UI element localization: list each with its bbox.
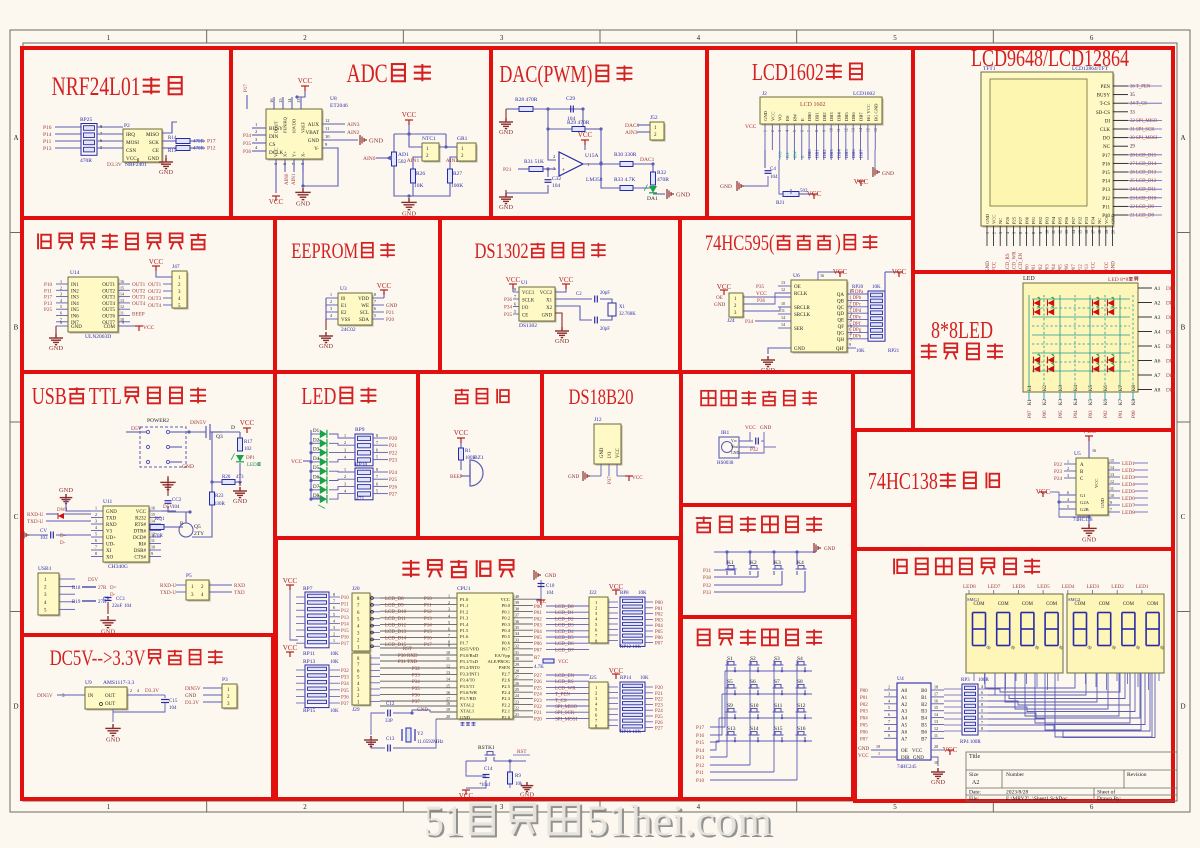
svg-text:LCD_EN: LCD_EN xyxy=(1019,252,1024,272)
svg-text:P02: P02 xyxy=(534,617,542,622)
svg-text:S6: S6 xyxy=(750,679,756,685)
svg-text:P05: P05 xyxy=(1058,216,1063,224)
svg-text:6: 6 xyxy=(1067,490,1069,495)
svg-text:A4: A4 xyxy=(1154,330,1161,336)
svg-text:6: 6 xyxy=(374,306,376,311)
svg-text:OUT4: OUT4 xyxy=(132,301,146,307)
svg-text:P17: P17 xyxy=(341,642,349,647)
svg-text:GND: GND xyxy=(1111,261,1116,272)
svg-text:GND: GND xyxy=(159,169,173,176)
svg-text:7: 7 xyxy=(888,719,890,724)
svg-text:P23: P23 xyxy=(389,458,397,464)
svg-text:VCC: VCC xyxy=(616,448,621,458)
svg-text:R9: R9 xyxy=(515,774,521,779)
svg-text:6: 6 xyxy=(1090,34,1094,42)
svg-text:R20: R20 xyxy=(222,475,231,480)
svg-text:VCC: VCC xyxy=(1092,261,1097,272)
svg-text:J52: J52 xyxy=(650,115,658,121)
svg-text:MISO: MISO xyxy=(146,132,159,138)
svg-text:P02: P02 xyxy=(1104,410,1109,418)
svg-text:RQ1: RQ1 xyxy=(155,517,165,522)
svg-text:P03: P03 xyxy=(1044,216,1049,224)
svg-text:37: 37 xyxy=(515,613,519,618)
svg-text:RST/VPD: RST/VPD xyxy=(460,647,480,652)
svg-text:104: 104 xyxy=(770,175,778,180)
svg-text:15 DPa: 15 DPa xyxy=(849,290,864,295)
svg-text:7: 7 xyxy=(514,294,516,299)
svg-text:DB0: DB0 xyxy=(807,112,812,121)
svg-text:P07: P07 xyxy=(1028,410,1033,418)
svg-text:P00: P00 xyxy=(1025,216,1030,224)
svg-text:SCL: SCL xyxy=(360,311,369,316)
svg-text:11: 11 xyxy=(1110,486,1114,491)
svg-text:P25: P25 xyxy=(1011,216,1016,224)
svg-text:473: 473 xyxy=(236,475,244,480)
svg-text:DPh: DPh xyxy=(1166,373,1176,379)
svg-text:13: 13 xyxy=(781,280,785,285)
svg-text:OUT2: OUT2 xyxy=(132,288,146,294)
svg-text:VCC: VCC xyxy=(454,429,469,437)
svg-text:RP7: RP7 xyxy=(303,586,313,592)
svg-text:P10: P10 xyxy=(44,282,52,288)
svg-text:A3: A3 xyxy=(901,710,908,715)
svg-text:18: 18 xyxy=(446,701,450,706)
svg-text:VCC: VCC xyxy=(402,111,417,119)
svg-text:LED7: LED7 xyxy=(988,584,1001,590)
svg-text:S7: S7 xyxy=(774,679,780,685)
svg-text:10K: 10K xyxy=(330,652,339,657)
svg-text:Title: Title xyxy=(969,754,980,760)
svg-text:5: 5 xyxy=(60,304,62,309)
svg-text:P24: P24 xyxy=(655,709,663,714)
svg-text:2: 2 xyxy=(992,232,997,234)
svg-text:13: 13 xyxy=(1110,472,1114,477)
svg-text:P05: P05 xyxy=(534,636,542,641)
svg-text:P26: P26 xyxy=(534,680,542,685)
svg-text:G2B: G2B xyxy=(1080,507,1089,512)
svg-text:P02: P02 xyxy=(655,613,663,618)
svg-text:T-CS: T-CS xyxy=(1100,102,1111,107)
svg-text:C14: C14 xyxy=(484,767,493,772)
svg-text:GND: GND xyxy=(1082,537,1096,544)
svg-text:LED6: LED6 xyxy=(1012,584,1025,590)
svg-text:RTS#: RTS# xyxy=(135,523,147,528)
svg-text:TXD: TXD xyxy=(234,590,245,596)
svg-text:COM: COM xyxy=(1075,602,1087,607)
svg-text:P14: P14 xyxy=(341,622,349,627)
svg-text:BZ1: BZ1 xyxy=(474,455,484,461)
svg-text:104: 104 xyxy=(172,505,180,510)
svg-text:P12: P12 xyxy=(696,763,704,769)
svg-text:Revision: Revision xyxy=(1127,772,1147,778)
svg-text:TTL: TTL xyxy=(89,384,122,410)
svg-text:K2: K2 xyxy=(1043,385,1048,391)
svg-text:VCC: VCC xyxy=(291,459,303,465)
svg-text:GND: GND xyxy=(148,156,159,162)
svg-text:P15: P15 xyxy=(1102,171,1110,176)
svg-text:S3: S3 xyxy=(774,656,780,662)
svg-text:B: B xyxy=(1181,323,1186,331)
svg-text:P00: P00 xyxy=(860,689,868,694)
svg-text:P2.0: P2.0 xyxy=(502,715,511,720)
svg-text:C2: C2 xyxy=(576,292,582,297)
svg-text:P2: P2 xyxy=(124,123,130,129)
svg-text:P1.4: P1.4 xyxy=(460,622,469,627)
svg-text:VCC: VCC xyxy=(1104,215,1109,224)
svg-text:PENIRQ: PENIRQ xyxy=(283,116,288,133)
svg-text:GND: GND xyxy=(101,629,115,636)
svg-text:GND: GND xyxy=(106,510,117,515)
svg-text:5: 5 xyxy=(1067,504,1069,509)
svg-text:X1: X1 xyxy=(619,305,625,310)
svg-text:P3.7/RD: P3.7/RD xyxy=(460,696,477,701)
svg-text:D1: D1 xyxy=(313,429,320,434)
svg-text:P2.3: P2.3 xyxy=(502,696,511,701)
svg-text:DS18B20: DS18B20 xyxy=(568,384,633,409)
svg-text:P03: P03 xyxy=(534,624,542,629)
svg-text:9: 9 xyxy=(822,130,826,132)
svg-text:15: 15 xyxy=(1110,458,1114,463)
svg-text:B0: B0 xyxy=(921,689,927,694)
svg-text:P00: P00 xyxy=(534,605,542,610)
svg-text:38: 38 xyxy=(515,606,519,611)
svg-text:P3.5/T1: P3.5/T1 xyxy=(460,684,475,689)
svg-text:34 T_CS: 34 T_CS xyxy=(1130,102,1147,107)
svg-text:P34: P34 xyxy=(745,319,753,325)
svg-text:VCC1: VCC1 xyxy=(522,291,535,296)
svg-text:BEEP: BEEP xyxy=(450,474,463,480)
svg-text:VCC: VCC xyxy=(1036,488,1051,496)
svg-text:4: 4 xyxy=(95,525,97,530)
svg-text:LCD12864/TFT: LCD12864/TFT xyxy=(1072,66,1109,72)
svg-text:8: 8 xyxy=(333,592,335,597)
svg-text:J24: J24 xyxy=(727,318,735,324)
svg-text:12: 12 xyxy=(325,118,330,123)
svg-text:J12: J12 xyxy=(594,417,602,423)
svg-text:IN2: IN2 xyxy=(71,289,79,294)
svg-text:VCC: VCC xyxy=(745,425,756,431)
svg-text:P00: P00 xyxy=(1132,410,1137,418)
svg-text:S13: S13 xyxy=(727,726,736,732)
svg-text:A4: A4 xyxy=(901,717,908,722)
svg-text:GND: GND xyxy=(760,425,771,431)
svg-text:P05: P05 xyxy=(655,630,663,635)
svg-text:P05: P05 xyxy=(860,724,868,729)
svg-text:GND: GND xyxy=(676,192,690,199)
svg-text:R232: R232 xyxy=(135,517,146,522)
svg-text:R29 470R: R29 470R xyxy=(567,120,590,126)
svg-text:K3: K3 xyxy=(1059,385,1064,391)
svg-text:VO: VO xyxy=(778,151,783,158)
svg-text:A1: A1 xyxy=(1154,286,1161,292)
svg-text:COM: COM xyxy=(1123,602,1135,607)
svg-text:VCC: VCC xyxy=(807,190,822,198)
svg-text:RW: RW xyxy=(792,113,797,121)
svg-text:14: 14 xyxy=(1071,230,1076,234)
svg-text:14: 14 xyxy=(446,677,450,682)
svg-text:DCD#: DCD# xyxy=(133,536,147,541)
svg-text:ALE/PROG: ALE/PROG xyxy=(488,659,511,664)
svg-text:OUT1: OUT1 xyxy=(132,282,146,288)
svg-text:P06: P06 xyxy=(1043,410,1048,418)
svg-text:COM: COM xyxy=(1147,602,1159,607)
svg-text:C29: C29 xyxy=(566,96,575,102)
svg-text:LED3: LED3 xyxy=(1087,584,1100,590)
svg-text:E: E xyxy=(800,155,805,158)
svg-text:D=: D= xyxy=(110,586,117,591)
svg-text:14: 14 xyxy=(934,712,938,717)
svg-text:AIN1: AIN1 xyxy=(407,158,420,164)
svg-text:S4: S4 xyxy=(797,656,803,662)
svg-text:Q3: Q3 xyxy=(216,434,223,440)
svg-text:RSTK1: RSTK1 xyxy=(478,745,495,751)
svg-text:A2: A2 xyxy=(972,780,979,786)
svg-text:GND: GND xyxy=(49,345,63,352)
svg-text:P11: P11 xyxy=(44,288,52,294)
svg-text:RP13: RP13 xyxy=(303,659,315,665)
svg-text:P3.6/WR: P3.6/WR xyxy=(460,690,478,695)
svg-text:P0.3: P0.3 xyxy=(502,622,511,627)
svg-text:VCC: VCC xyxy=(858,753,869,759)
svg-text:OUT3: OUT3 xyxy=(148,296,162,302)
svg-text:P23: P23 xyxy=(655,703,663,708)
svg-text:P21: P21 xyxy=(655,692,663,697)
svg-text:A5: A5 xyxy=(901,724,908,729)
svg-text:VCC: VCC xyxy=(717,283,732,291)
svg-text:VCC: VCC xyxy=(274,148,279,157)
svg-text:AIN2: AIN2 xyxy=(446,158,459,164)
svg-text:33P: 33P xyxy=(385,719,393,724)
svg-text:G2A: G2A xyxy=(1080,500,1090,505)
svg-text:2: 2 xyxy=(344,474,346,479)
svg-text:470R: 470R xyxy=(80,158,92,164)
svg-text:6: 6 xyxy=(448,627,450,632)
svg-text:IRQ: IRQ xyxy=(126,132,135,138)
svg-text:P2.1: P2.1 xyxy=(502,709,511,714)
svg-text:DB2: DB2 xyxy=(822,112,827,121)
svg-text:A: A xyxy=(1180,134,1185,142)
svg-text:2: 2 xyxy=(303,803,307,811)
svg-text:P21: P21 xyxy=(389,443,397,449)
svg-text:CLK: CLK xyxy=(1100,128,1110,133)
svg-text:VCC: VCC xyxy=(377,282,392,290)
svg-text:GR1: GR1 xyxy=(457,136,468,142)
svg-text:GND: GND xyxy=(417,708,428,713)
svg-text:30: 30 xyxy=(515,656,519,661)
svg-text:XTAL1: XTAL1 xyxy=(460,709,475,714)
svg-text:13: 13 xyxy=(934,719,938,724)
svg-text:LED8: LED8 xyxy=(1122,510,1135,516)
svg-text:QC: QC xyxy=(837,306,845,311)
svg-text:J29: J29 xyxy=(352,707,360,713)
svg-text:DIN5V: DIN5V xyxy=(185,686,201,692)
svg-text:10: 10 xyxy=(1110,493,1114,498)
svg-text:VCC: VCC xyxy=(558,660,569,665)
svg-text:11.0592MHz: 11.0592MHz xyxy=(417,740,444,745)
svg-text:U1: U1 xyxy=(521,280,528,286)
svg-text:P10: P10 xyxy=(341,596,349,601)
svg-text:2: 2 xyxy=(553,154,555,159)
svg-text:P30: P30 xyxy=(703,575,711,581)
svg-text:24: 24 xyxy=(515,693,519,698)
svg-text:NC: NC xyxy=(1103,145,1111,150)
svg-text:CR: CR xyxy=(103,597,110,602)
svg-text:D2: D2 xyxy=(313,438,320,443)
svg-text:IN1: IN1 xyxy=(71,283,79,288)
svg-text:OUT5: OUT5 xyxy=(102,308,115,313)
svg-text:P13: P13 xyxy=(696,755,704,761)
svg-text:15: 15 xyxy=(934,705,938,710)
svg-text:S5: S5 xyxy=(727,679,733,685)
svg-text:3: 3 xyxy=(344,447,346,452)
svg-text:QH: QH xyxy=(837,338,845,343)
svg-text:P01: P01 xyxy=(1119,410,1124,418)
svg-text:): ) xyxy=(835,230,841,255)
svg-text:P2.2: P2.2 xyxy=(502,702,511,707)
svg-text:12: 12 xyxy=(1110,479,1114,484)
svg-text:8: 8 xyxy=(981,702,983,707)
svg-text:IN4: IN4 xyxy=(71,302,79,307)
svg-text:B6: B6 xyxy=(921,730,927,735)
svg-text:VCC: VCC xyxy=(609,667,624,675)
svg-text:8*8LED: 8*8LED xyxy=(931,318,993,344)
svg-text:6: 6 xyxy=(514,302,516,307)
svg-text:P1.1: P1.1 xyxy=(460,603,469,608)
svg-text:DPe: DPe xyxy=(1166,330,1176,336)
svg-text:D3.3V: D3.3V xyxy=(145,688,159,694)
svg-text:P14: P14 xyxy=(696,748,704,754)
svg-text:P04: P04 xyxy=(534,630,542,635)
svg-text:D=: D= xyxy=(60,534,67,539)
svg-text:2: 2 xyxy=(60,285,62,290)
svg-text:RP25: RP25 xyxy=(80,117,92,123)
svg-text:VCC: VCC xyxy=(770,112,775,121)
svg-text:DB3: DB3 xyxy=(829,149,834,158)
svg-text:VCC: VCC xyxy=(283,644,298,652)
svg-text:S16: S16 xyxy=(797,726,806,732)
svg-text:VCC: VCC xyxy=(143,325,155,331)
svg-text:P22: P22 xyxy=(389,450,397,456)
svg-text:DPg: DPg xyxy=(1166,301,1176,307)
svg-text:I/O: I/O xyxy=(608,451,613,458)
svg-text:VCC2: VCC2 xyxy=(540,291,553,296)
svg-text:10: 10 xyxy=(325,134,330,139)
svg-text:C: C xyxy=(1181,513,1186,521)
svg-text:LED: LED xyxy=(1023,276,1035,282)
svg-text:UD+: UD+ xyxy=(106,536,116,541)
svg-text:D: D xyxy=(231,425,235,431)
svg-text:1: 1 xyxy=(107,34,111,42)
svg-text:4: 4 xyxy=(1067,497,1069,502)
svg-text:30 SPI_MOSI: 30 SPI_MOSI xyxy=(1130,136,1158,141)
svg-text:X1: X1 xyxy=(546,299,552,304)
svg-text:LED2: LED2 xyxy=(1122,468,1135,474)
svg-text:IN: IN xyxy=(88,694,94,699)
svg-text:5: 5 xyxy=(376,455,378,460)
svg-text:Q5: Q5 xyxy=(194,524,201,530)
svg-text:P16: P16 xyxy=(341,636,349,641)
svg-text:E1: E1 xyxy=(341,304,347,309)
svg-text:3: 3 xyxy=(330,306,332,311)
svg-text:DPa: DPa xyxy=(1166,388,1176,394)
svg-text:GND: GND xyxy=(568,474,579,480)
svg-text:DB4: DB4 xyxy=(837,149,842,158)
svg-text:4: 4 xyxy=(344,489,346,494)
svg-text:31: 31 xyxy=(515,650,519,655)
svg-text:11: 11 xyxy=(934,733,938,738)
svg-text:GND: GND xyxy=(824,546,835,552)
svg-text:3: 3 xyxy=(888,691,890,696)
svg-text:8: 8 xyxy=(514,287,516,292)
svg-text:RST: RST xyxy=(517,749,527,755)
svg-text:P07: P07 xyxy=(860,737,868,742)
svg-text:16: 16 xyxy=(269,98,274,103)
svg-text:GND: GND xyxy=(714,302,725,308)
svg-text:IN6: IN6 xyxy=(71,315,79,320)
svg-text:SRCLR: SRCLR xyxy=(794,306,811,311)
svg-text:POWER2: POWER2 xyxy=(147,418,169,424)
svg-text:D3: D3 xyxy=(313,448,320,453)
svg-text:GND: GND xyxy=(296,201,310,208)
svg-text:7: 7 xyxy=(1025,232,1030,234)
svg-text:P12: P12 xyxy=(207,146,216,152)
svg-text:AIN0: AIN0 xyxy=(285,173,290,185)
svg-text:DIN5V: DIN5V xyxy=(190,420,207,426)
svg-text:P04: P04 xyxy=(1052,264,1057,272)
svg-text:4: 4 xyxy=(333,618,335,623)
svg-text:DAC(PWM): DAC(PWM) xyxy=(499,62,592,88)
svg-text:LED1: LED1 xyxy=(1122,461,1135,467)
svg-text:P5: P5 xyxy=(186,573,192,579)
svg-text:10K: 10K xyxy=(414,183,424,189)
svg-text:P00: P00 xyxy=(1026,264,1031,272)
svg-text:DI: DI xyxy=(1105,119,1111,124)
svg-text:11: 11 xyxy=(1051,230,1056,234)
svg-text:P23: P23 xyxy=(534,699,542,704)
svg-text:P37: P37 xyxy=(341,702,349,707)
svg-text:GND: GND xyxy=(499,204,513,211)
svg-text:IOVDD: IOVDD xyxy=(292,119,297,133)
svg-text:4: 4 xyxy=(1005,232,1010,234)
svg-text:P0.4: P0.4 xyxy=(502,628,511,633)
svg-text:DIN5V: DIN5V xyxy=(37,693,53,699)
svg-text:27: 27 xyxy=(515,675,519,680)
svg-text:9: 9 xyxy=(448,643,450,648)
svg-text:OE: OE xyxy=(901,749,908,754)
svg-text:502: 502 xyxy=(398,159,407,165)
svg-text:4: 4 xyxy=(344,455,346,460)
svg-text:Date:: Date: xyxy=(969,790,981,796)
svg-text:20pF: 20pF xyxy=(600,327,610,332)
svg-text:5 DPf: 5 DPf xyxy=(849,322,861,327)
svg-text:17: 17 xyxy=(934,691,938,696)
svg-text:P01: P01 xyxy=(860,696,868,701)
svg-text:7: 7 xyxy=(1110,507,1112,512)
svg-text:102: 102 xyxy=(244,447,252,452)
svg-text:LED: LED xyxy=(301,384,336,410)
svg-text:VCC: VCC xyxy=(833,268,848,276)
svg-text:VCC: VCC xyxy=(506,276,521,284)
svg-text:1: 1 xyxy=(985,232,990,234)
svg-text:GND: GND xyxy=(1110,213,1115,224)
svg-text:RXD: RXD xyxy=(106,523,117,528)
svg-text:P01: P01 xyxy=(1032,264,1037,272)
svg-text:P1.3: P1.3 xyxy=(460,616,469,621)
svg-text:CS: CS xyxy=(269,142,275,148)
svg-text:Sheet of: Sheet of xyxy=(1097,789,1115,796)
svg-text:VCC: VCC xyxy=(892,268,907,276)
svg-text:P0.7: P0.7 xyxy=(502,647,511,652)
